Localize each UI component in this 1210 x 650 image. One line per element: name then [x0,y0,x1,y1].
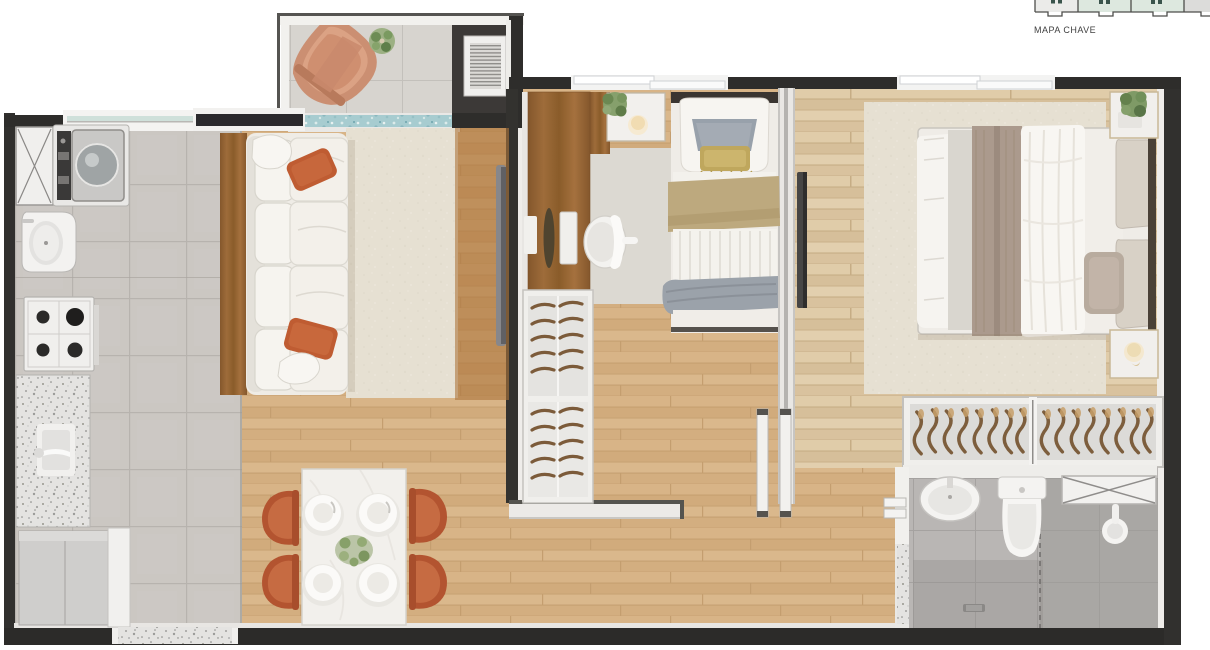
svg-text:MAPA CHAVE: MAPA CHAVE [1034,25,1096,35]
